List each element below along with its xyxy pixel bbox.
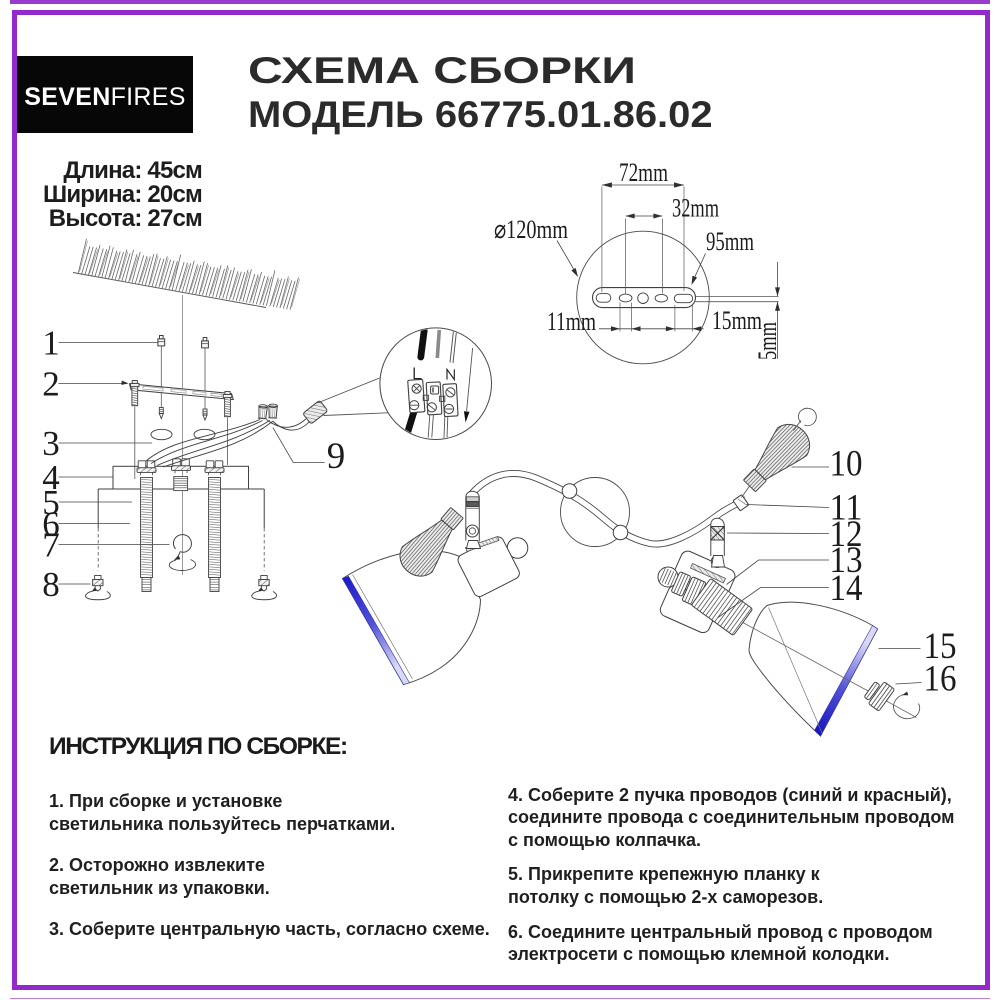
- svg-text:1: 1: [42, 324, 60, 363]
- svg-text:2: 2: [42, 365, 60, 404]
- svg-text:95mm: 95mm: [706, 227, 754, 256]
- svg-text:32mm: 32mm: [672, 194, 719, 223]
- svg-text:7: 7: [42, 526, 60, 565]
- svg-text:⌀120mm: ⌀120mm: [494, 215, 568, 244]
- svg-text:10: 10: [830, 444, 863, 485]
- svg-text:8: 8: [42, 565, 60, 604]
- svg-text:5mm: 5mm: [753, 322, 782, 360]
- svg-text:16: 16: [924, 659, 957, 700]
- svg-text:14: 14: [830, 568, 863, 609]
- svg-text:9: 9: [327, 436, 346, 477]
- svg-text:72mm: 72mm: [619, 158, 668, 187]
- svg-text:11mm: 11mm: [547, 307, 596, 336]
